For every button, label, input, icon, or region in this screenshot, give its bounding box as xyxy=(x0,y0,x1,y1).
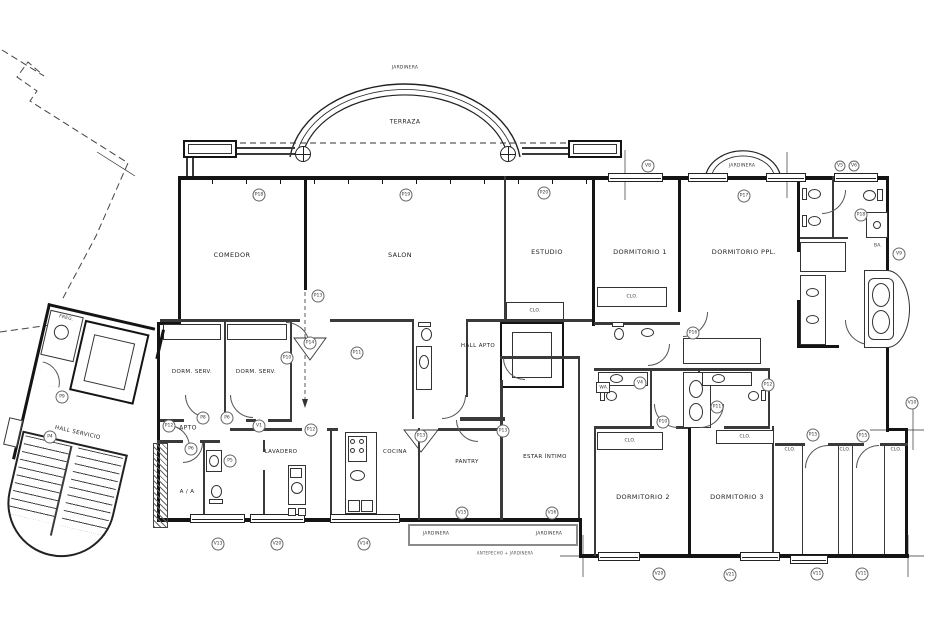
tag-bubble: P10 xyxy=(281,352,294,365)
toilet-tank xyxy=(761,390,766,401)
tag-bubble: P11 xyxy=(711,401,724,414)
laundry-box xyxy=(298,508,306,516)
tag-bubble: P20 xyxy=(538,187,551,200)
tag-bubble: V11 xyxy=(811,568,824,581)
tag-bubble: V21 xyxy=(724,569,737,582)
wall xyxy=(200,440,220,443)
room-label-hall-apto: HALL APTO xyxy=(461,343,495,349)
counter-unit xyxy=(361,500,373,512)
jardinera-strip xyxy=(408,544,578,546)
wall xyxy=(230,428,302,431)
tag-bubble: P6 xyxy=(221,412,234,425)
window xyxy=(790,555,828,564)
tag-bubble: P13 xyxy=(312,290,325,303)
wall xyxy=(224,322,226,420)
room-label-dorm-serv-1: DORM. SERV. xyxy=(172,369,212,375)
planter-box-inner xyxy=(188,144,232,154)
sink xyxy=(641,328,654,337)
window xyxy=(688,173,728,182)
sink xyxy=(712,374,725,383)
room-label-cocina: COCINA xyxy=(383,449,407,455)
room-label-dormitorio1: DORMITORIO 1 xyxy=(613,248,667,256)
toilet-tank xyxy=(802,188,807,200)
wall xyxy=(500,380,503,520)
washer-top xyxy=(290,468,302,478)
window xyxy=(766,173,806,182)
tag-bubble: P12 xyxy=(762,379,775,392)
rail xyxy=(522,147,568,149)
jardinera-label: JARDINERA xyxy=(536,532,562,537)
tag-bubble: V14 xyxy=(358,538,371,551)
tag-bubble: P8 xyxy=(197,412,210,425)
small-arch-outer xyxy=(706,151,780,174)
kitchen-sink xyxy=(350,470,365,481)
terrace-arch-inner xyxy=(302,95,508,157)
wall xyxy=(724,426,770,429)
rail xyxy=(237,153,295,155)
wall xyxy=(412,319,414,419)
clo-label: CLO. xyxy=(529,309,540,314)
wall xyxy=(330,319,414,322)
jardinera-label: JARDINERA xyxy=(729,164,755,169)
wall xyxy=(802,446,803,554)
stove-burner xyxy=(359,439,364,444)
tag-bubble: P12 xyxy=(163,420,176,433)
closet xyxy=(163,324,221,340)
window xyxy=(598,552,640,561)
tag-bubble: P13 xyxy=(497,425,510,438)
tag-bubble: V5 xyxy=(835,161,846,172)
wall-ticks xyxy=(178,176,590,184)
jardinera-strip xyxy=(408,524,578,526)
laundry-box xyxy=(288,508,296,516)
jardinera-label: JARDINERA xyxy=(423,532,449,537)
room-label-estudio: ESTUDIO xyxy=(531,248,563,256)
tag-bubble: P6 xyxy=(185,443,198,456)
tag-bubble: P17 xyxy=(738,190,751,203)
antepecho-note: ANTEPECHO + JARDINERA xyxy=(477,551,533,556)
window xyxy=(740,552,780,561)
room-label-estar-intimo: ESTAR ÍNTIMO xyxy=(523,454,567,460)
toilet-bowl xyxy=(748,391,759,401)
tag-bubble: V9 xyxy=(893,248,906,261)
bidet-bowl xyxy=(808,216,821,226)
wall xyxy=(203,440,205,520)
tag-bubble: P18 xyxy=(253,189,266,202)
clo-label: CLO. xyxy=(784,448,795,453)
wall xyxy=(330,428,332,520)
wall xyxy=(797,176,800,252)
clo-label: CLO. xyxy=(624,439,635,444)
aa-hatched-wall xyxy=(153,443,168,528)
sink xyxy=(806,288,819,297)
room-label-dormitorio-ppl: DORMITORIO PPL. xyxy=(712,248,776,256)
wall xyxy=(775,443,805,446)
toilet-tank xyxy=(418,322,431,327)
wa-box: WA. xyxy=(596,382,610,393)
jardinera-label: JARDINERA xyxy=(392,66,418,71)
floor-plan: WA. FREG. HALL SERVICIO TERRAZA JARDINER… xyxy=(0,0,926,624)
toilet-bowl xyxy=(614,328,624,340)
ba-label: BA. xyxy=(874,244,882,249)
tag-bubble: V10 xyxy=(906,397,919,410)
wall xyxy=(852,446,853,554)
jardinera-strip xyxy=(576,524,578,546)
shower-drain xyxy=(873,221,881,229)
stove-burner xyxy=(350,448,355,453)
wall xyxy=(263,470,265,520)
clo-label: CLO. xyxy=(890,448,901,453)
rail xyxy=(522,153,568,155)
window xyxy=(250,514,305,523)
bathtub-inner xyxy=(872,283,890,307)
tag-bubble: P19 xyxy=(400,189,413,202)
toilet-tank xyxy=(877,189,883,201)
tag-bubble: P13 xyxy=(415,430,428,443)
room-label-comedor: COMEDOR xyxy=(214,251,251,259)
room-label-dormitorio3: DORMITORIO 3 xyxy=(710,493,764,501)
wall xyxy=(178,176,181,326)
washer-drum xyxy=(291,482,303,494)
clo-label: CLO. xyxy=(839,448,850,453)
wall xyxy=(466,322,468,397)
tag-bubble: V4 xyxy=(634,377,647,390)
tag-bubble: V11 xyxy=(856,568,869,581)
tag-bubble: P10 xyxy=(657,416,670,429)
wall xyxy=(504,176,506,322)
wall xyxy=(594,426,654,429)
tag-bubble: V8 xyxy=(642,160,655,173)
wall xyxy=(678,176,681,312)
window xyxy=(330,514,400,523)
wall xyxy=(772,426,774,556)
tag-bubble: V13 xyxy=(212,538,225,551)
room-label-lavadero: LAVADERO xyxy=(265,449,298,455)
wardrobe xyxy=(683,338,761,364)
room-label-aa: A / A xyxy=(180,489,195,495)
room-label-apto: APTO xyxy=(179,425,197,432)
sink xyxy=(610,374,623,383)
wa-label: WA. xyxy=(599,386,608,391)
door-arc xyxy=(38,361,64,387)
toilet-bowl xyxy=(808,189,821,199)
wall xyxy=(797,345,839,348)
tag-bubble: P16 xyxy=(687,327,700,340)
tag-bubble: V20 xyxy=(653,568,666,581)
sink xyxy=(209,455,219,467)
column xyxy=(500,146,516,162)
room-label-dormitorio2: DORMITORIO 2 xyxy=(616,493,670,501)
room-label-dorm-serv-2: DORM. SERV. xyxy=(236,369,276,375)
tag-bubble: P12 xyxy=(305,424,318,437)
centerline-arrow xyxy=(302,399,308,408)
tag-bubble: V1 xyxy=(253,420,266,433)
wall xyxy=(579,518,582,558)
jardinera-strip xyxy=(408,524,410,546)
tag-bubble: P9 xyxy=(56,391,69,404)
sink xyxy=(806,315,819,324)
toilet-bowl xyxy=(211,485,222,498)
room-label-pantry: PANTRY xyxy=(455,459,478,465)
wall xyxy=(578,356,580,518)
tag-bubble: P14 xyxy=(304,337,317,350)
wall xyxy=(768,368,770,428)
rail xyxy=(192,158,194,176)
counter-unit xyxy=(348,500,360,512)
tag-bubble: P15 xyxy=(807,429,820,442)
bidet-tank xyxy=(802,215,807,227)
linework-overlay xyxy=(0,0,926,624)
wall xyxy=(327,428,338,431)
tag-bubble: P15 xyxy=(857,430,870,443)
toilet-bowl xyxy=(863,190,876,201)
clo-label: CLO. xyxy=(626,295,637,300)
tag-bubble: V6 xyxy=(849,161,860,172)
sink xyxy=(689,380,703,398)
toilet-tank xyxy=(209,499,223,504)
wall xyxy=(905,428,908,558)
wall xyxy=(800,237,848,239)
wall xyxy=(160,319,300,322)
wall xyxy=(688,426,691,556)
toilet-bowl xyxy=(421,328,432,341)
tag-bubble: V15 xyxy=(456,507,469,520)
wall xyxy=(594,322,680,325)
wall xyxy=(650,368,652,428)
clo-label: CLO. xyxy=(739,435,750,440)
wall xyxy=(592,176,595,326)
rail xyxy=(186,158,188,176)
tag-bubble: V16 xyxy=(546,507,559,520)
room-label-terraza: TERRAZA xyxy=(390,119,421,126)
tag-bubble: P5 xyxy=(224,455,237,468)
tag-bubble: P4 xyxy=(44,431,57,444)
boundary-dashed xyxy=(2,50,128,300)
wall xyxy=(594,368,770,371)
rail xyxy=(237,147,295,149)
tag-bubble: V20 xyxy=(271,538,284,551)
wall xyxy=(884,446,885,554)
stove-burner xyxy=(359,448,364,453)
wall xyxy=(268,419,290,422)
window xyxy=(608,173,663,182)
tag-bubble: P18 xyxy=(855,209,868,222)
window xyxy=(190,514,245,523)
planter-box-inner xyxy=(573,144,617,154)
wall xyxy=(594,426,596,556)
sink xyxy=(419,355,429,369)
cabinet xyxy=(800,242,846,272)
stove-burner xyxy=(350,439,355,444)
closet xyxy=(227,324,287,340)
vanity xyxy=(702,372,752,386)
vanity xyxy=(800,275,826,345)
wall xyxy=(828,443,864,446)
window xyxy=(834,173,878,182)
tag-bubble: P11 xyxy=(351,347,364,360)
toilet-tank xyxy=(612,322,624,327)
room-label-salon: SALON xyxy=(388,251,412,259)
bathtub-inner xyxy=(872,310,890,334)
wall xyxy=(304,176,307,290)
wall xyxy=(838,446,839,554)
column xyxy=(295,146,311,162)
